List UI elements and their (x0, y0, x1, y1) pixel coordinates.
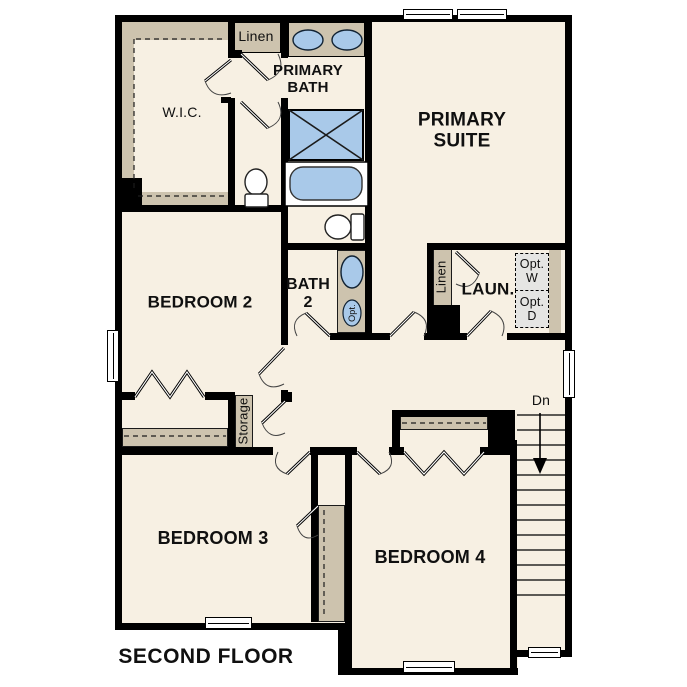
wall-segment (311, 455, 318, 622)
wall-segment (488, 410, 515, 455)
closet-label-storage: Storage (237, 398, 252, 445)
floor-plan: W.I.C. Linen PRIMARY BATH PRIMARY SUITE … (0, 0, 687, 687)
primary-vanity (288, 22, 365, 57)
wall-segment (285, 392, 292, 402)
wall-segment (115, 392, 135, 400)
stairs-label-down: Dn (532, 393, 550, 409)
laundry-counter (549, 250, 561, 333)
window (563, 350, 575, 398)
room-label-bedroom3: BEDROOM 3 (158, 528, 269, 548)
room-label-wic: W.I.C. (162, 105, 201, 121)
room-label-bedroom2: BEDROOM 2 (148, 292, 253, 311)
wall-segment (427, 305, 460, 340)
closet-label-linen: Linen (238, 29, 273, 45)
wall-segment (230, 50, 242, 58)
label-optional-washer: Opt. W (520, 257, 544, 285)
wall-segment (507, 333, 565, 340)
closet-label-linen-laundry: Linen (435, 261, 450, 294)
wall-segment (281, 22, 288, 58)
wall-segment (372, 333, 390, 340)
window (403, 9, 453, 20)
room-label-bedroom4: BEDROOM 4 (375, 547, 486, 567)
wall-segment (115, 447, 273, 455)
wall-segment (228, 392, 235, 455)
wall-segment (460, 333, 467, 340)
page-title: SECOND FLOOR (118, 645, 293, 669)
wall-segment (365, 15, 372, 250)
wall-segment (310, 447, 357, 455)
room-label-bath2: BATH 2 (286, 276, 330, 312)
wall-segment (221, 97, 231, 103)
wall-segment (427, 250, 433, 305)
window (403, 661, 455, 673)
bedroom4-closet-shelf (400, 415, 488, 430)
wall-segment (115, 15, 122, 630)
wall-segment (565, 15, 572, 657)
room-label-primary-bath: PRIMARY BATH (273, 63, 343, 97)
window (205, 617, 252, 629)
wall-segment (281, 98, 288, 243)
wall-segment (365, 250, 372, 340)
wall-segment (228, 98, 235, 212)
wall-segment (427, 243, 572, 250)
bedroom2-closet-shelf (122, 428, 228, 447)
room-label-laundry: LAUN. (462, 279, 515, 298)
bedroom3-closet (318, 505, 345, 622)
label-optional-sink: Opt. (347, 304, 357, 322)
window (457, 9, 507, 20)
wall-segment (480, 447, 488, 455)
room-label-primary-suite: PRIMARY SUITE (418, 110, 506, 153)
wall-segment (338, 623, 345, 675)
wall-segment (115, 178, 142, 212)
wall-segment (510, 440, 517, 675)
window (528, 647, 561, 658)
window (107, 330, 119, 382)
wall-segment (281, 243, 372, 250)
wic-shelf-top (122, 22, 228, 40)
wall-segment (345, 447, 352, 675)
wall-segment (392, 410, 400, 455)
label-optional-dryer: Opt. D (520, 295, 544, 323)
